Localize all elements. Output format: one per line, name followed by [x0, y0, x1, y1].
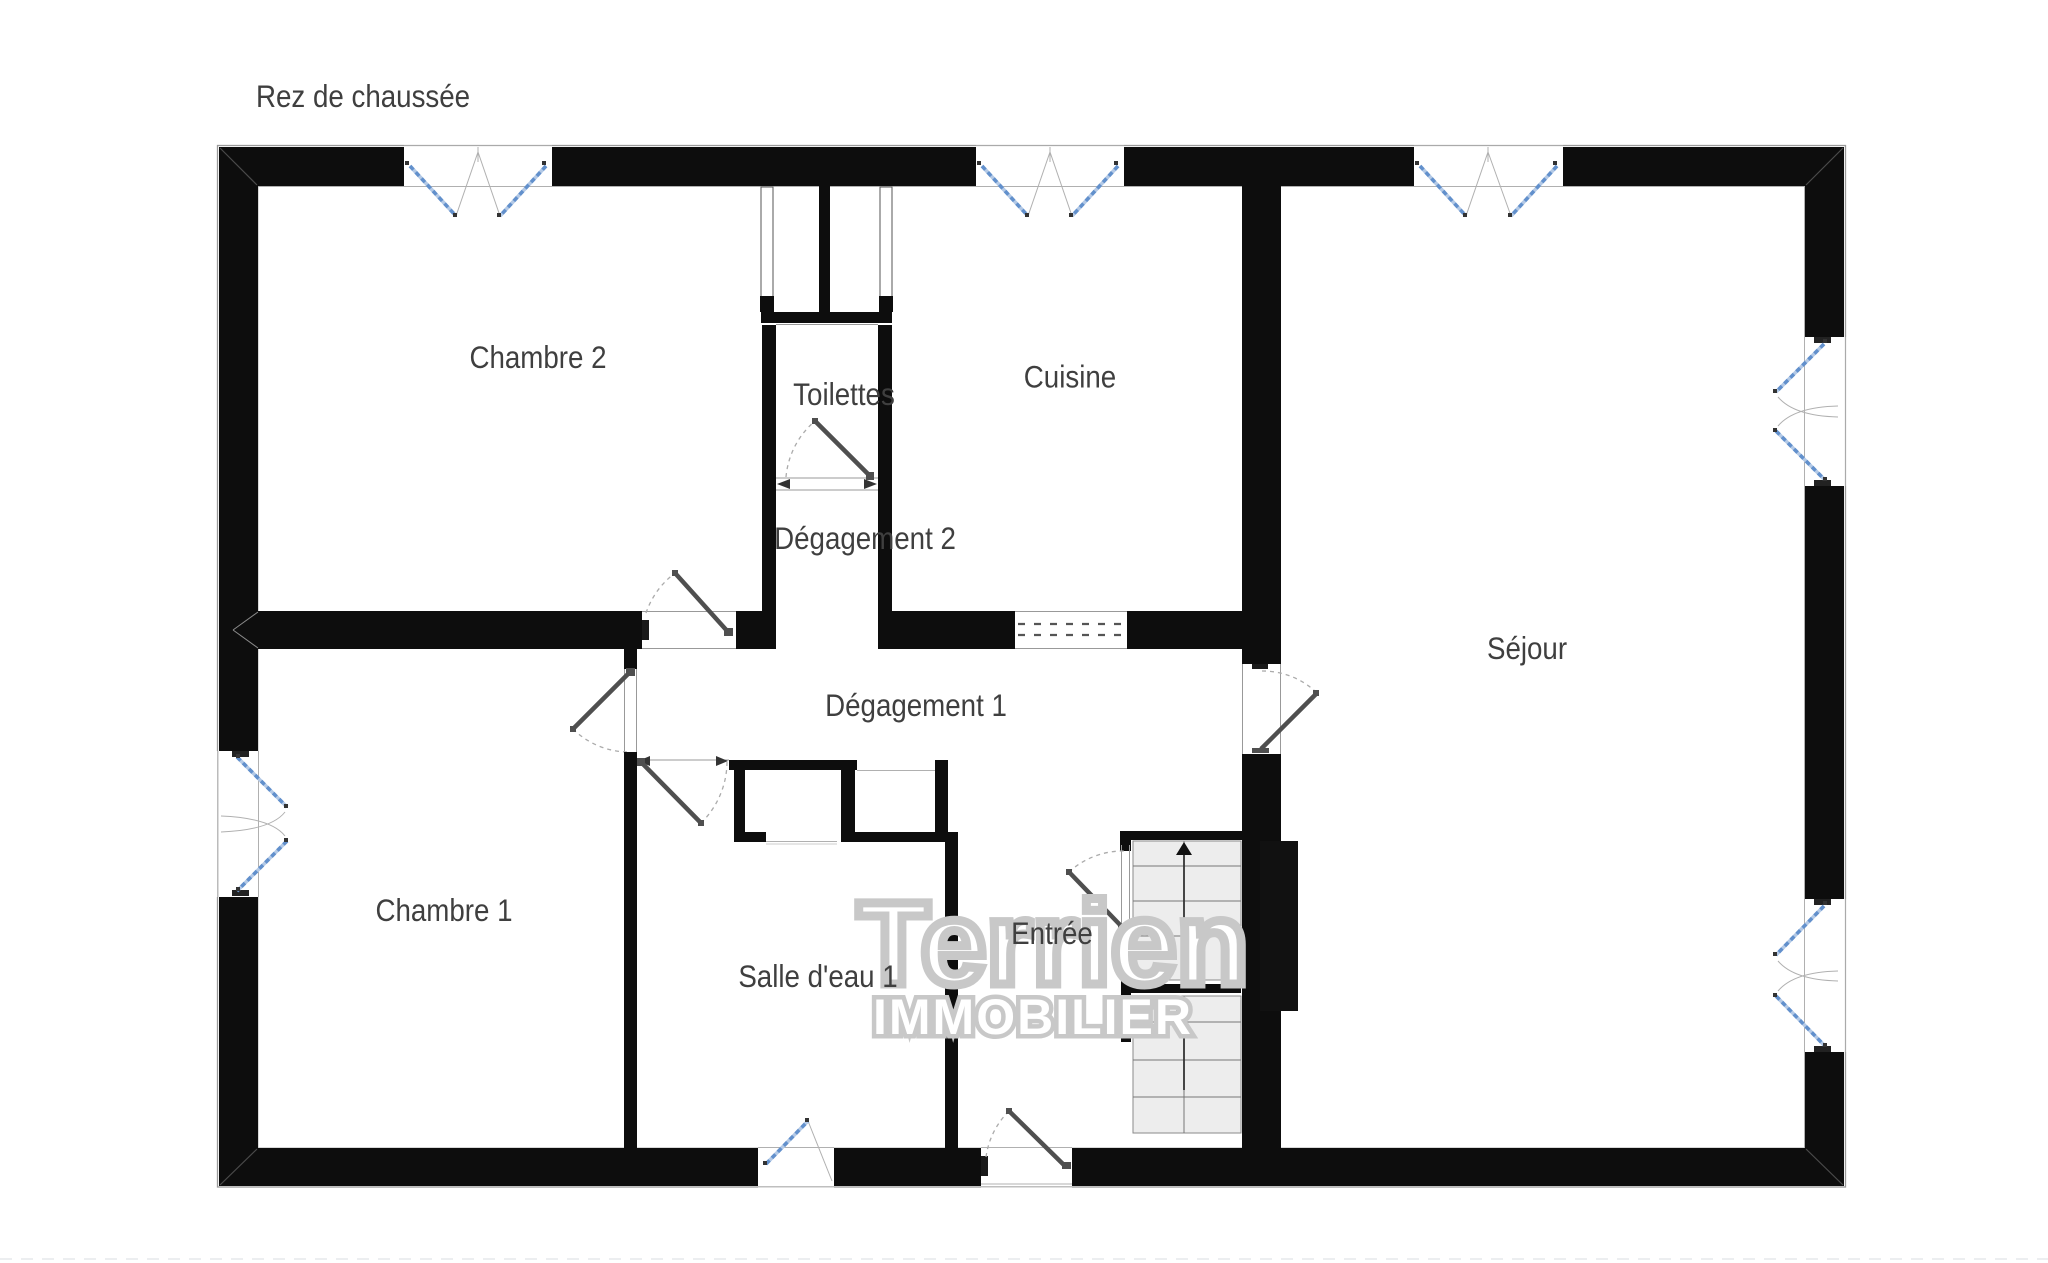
svg-text:Cuisine: Cuisine [1024, 360, 1116, 395]
svg-text:Dégagement 1: Dégagement 1 [825, 688, 1007, 723]
svg-text:IMMOBILIER: IMMOBILIER [873, 989, 1193, 1045]
svg-text:Rez de chaussée: Rez de chaussée [256, 79, 470, 114]
svg-text:Chambre 2: Chambre 2 [469, 340, 606, 375]
svg-text:Salle d'eau 1: Salle d'eau 1 [738, 959, 897, 994]
svg-text:Séjour: Séjour [1487, 631, 1567, 666]
svg-text:Toilettes: Toilettes [793, 377, 895, 412]
svg-text:Entrée: Entrée [1011, 916, 1093, 951]
svg-text:Chambre 1: Chambre 1 [375, 893, 512, 928]
svg-text:Dégagement 2: Dégagement 2 [774, 521, 956, 556]
